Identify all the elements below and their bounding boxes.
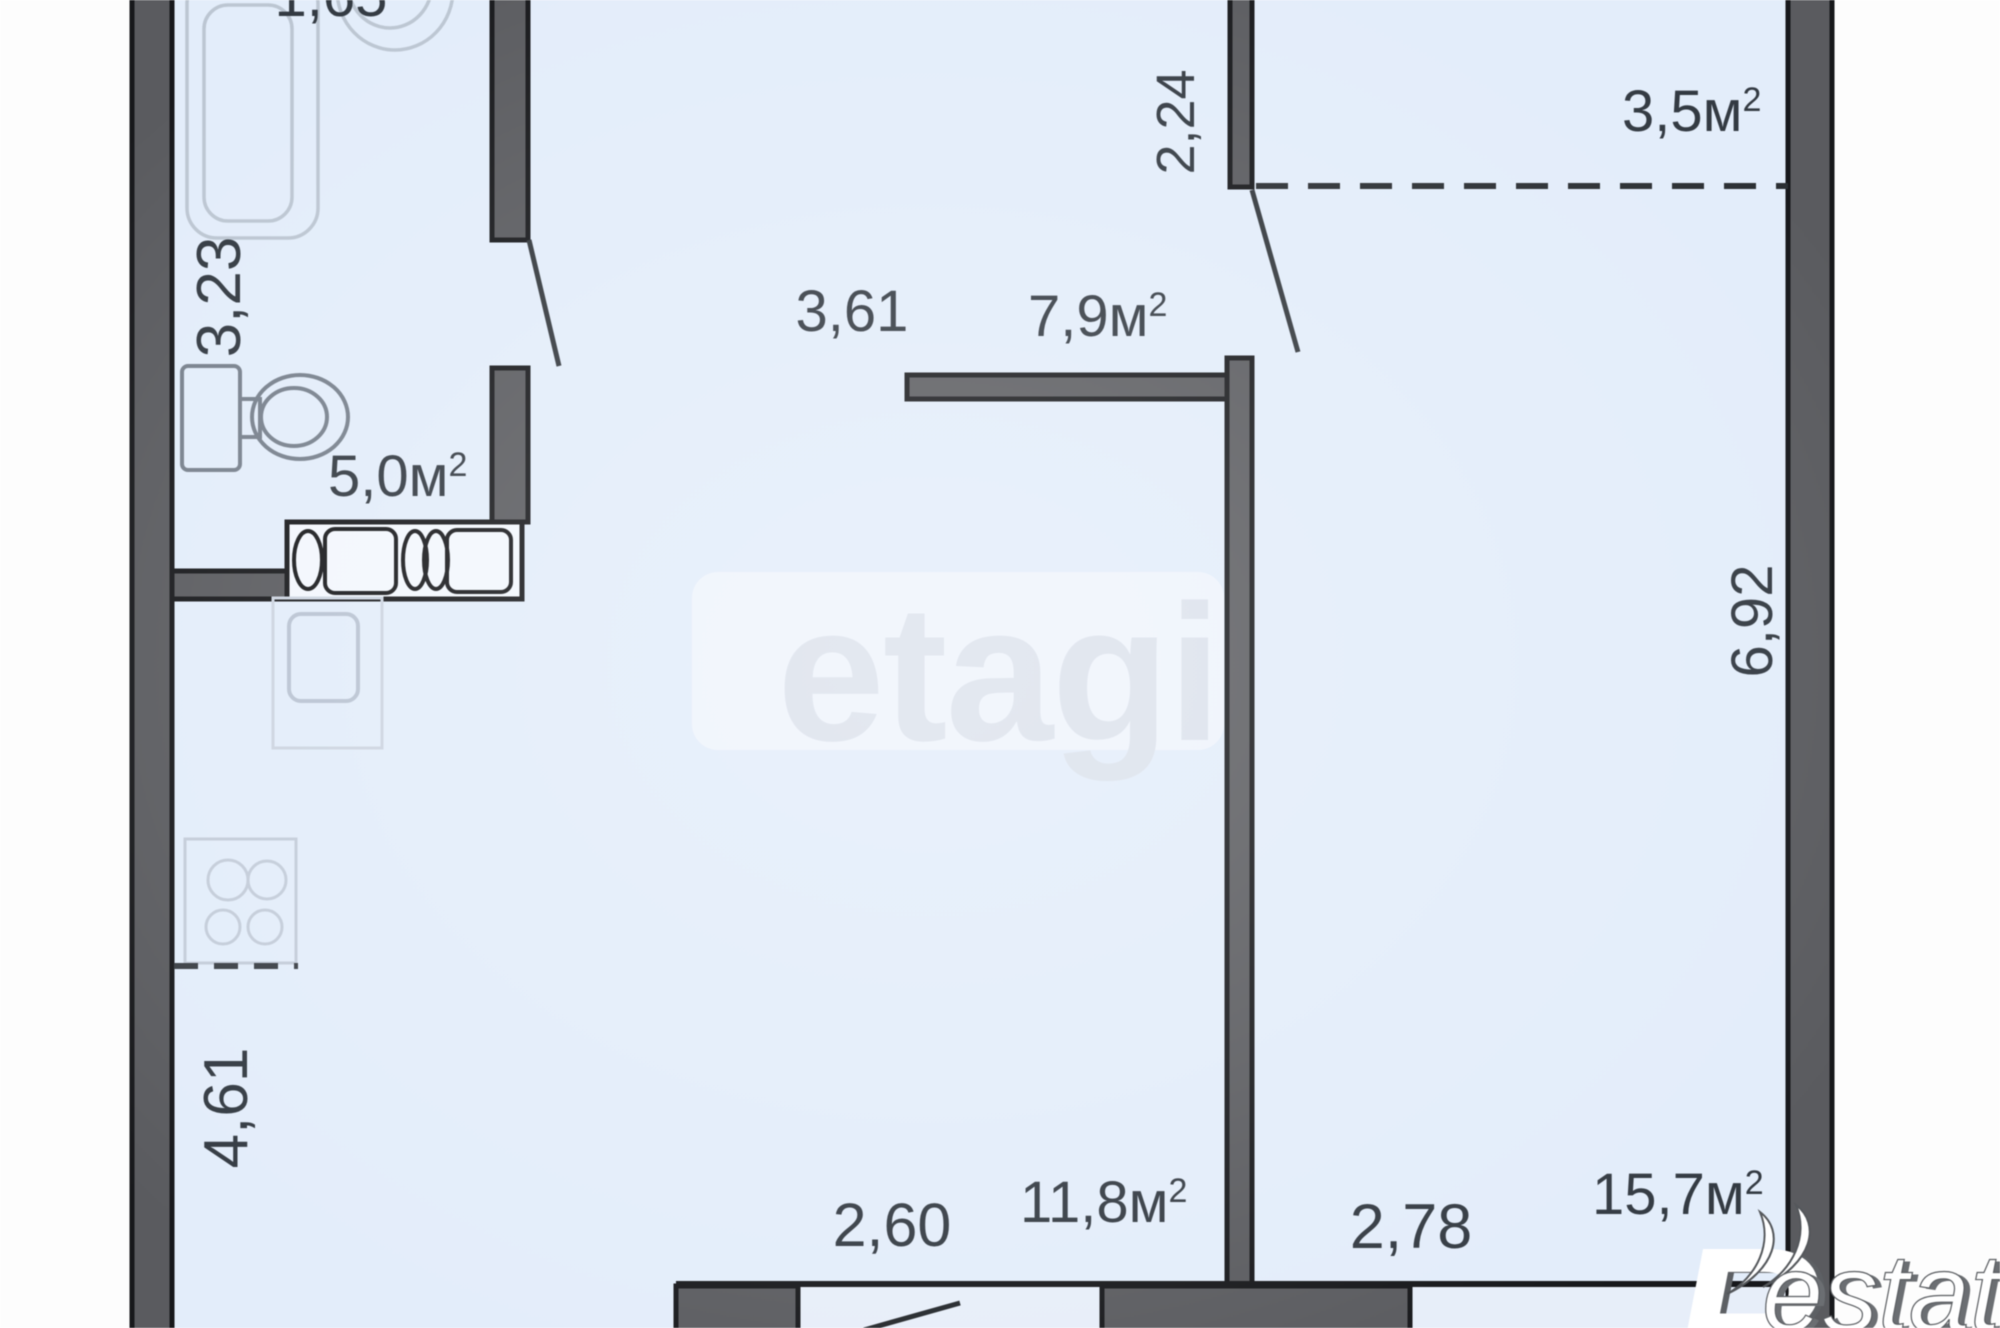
svg-text:estate: estate [1762,1232,2000,1328]
